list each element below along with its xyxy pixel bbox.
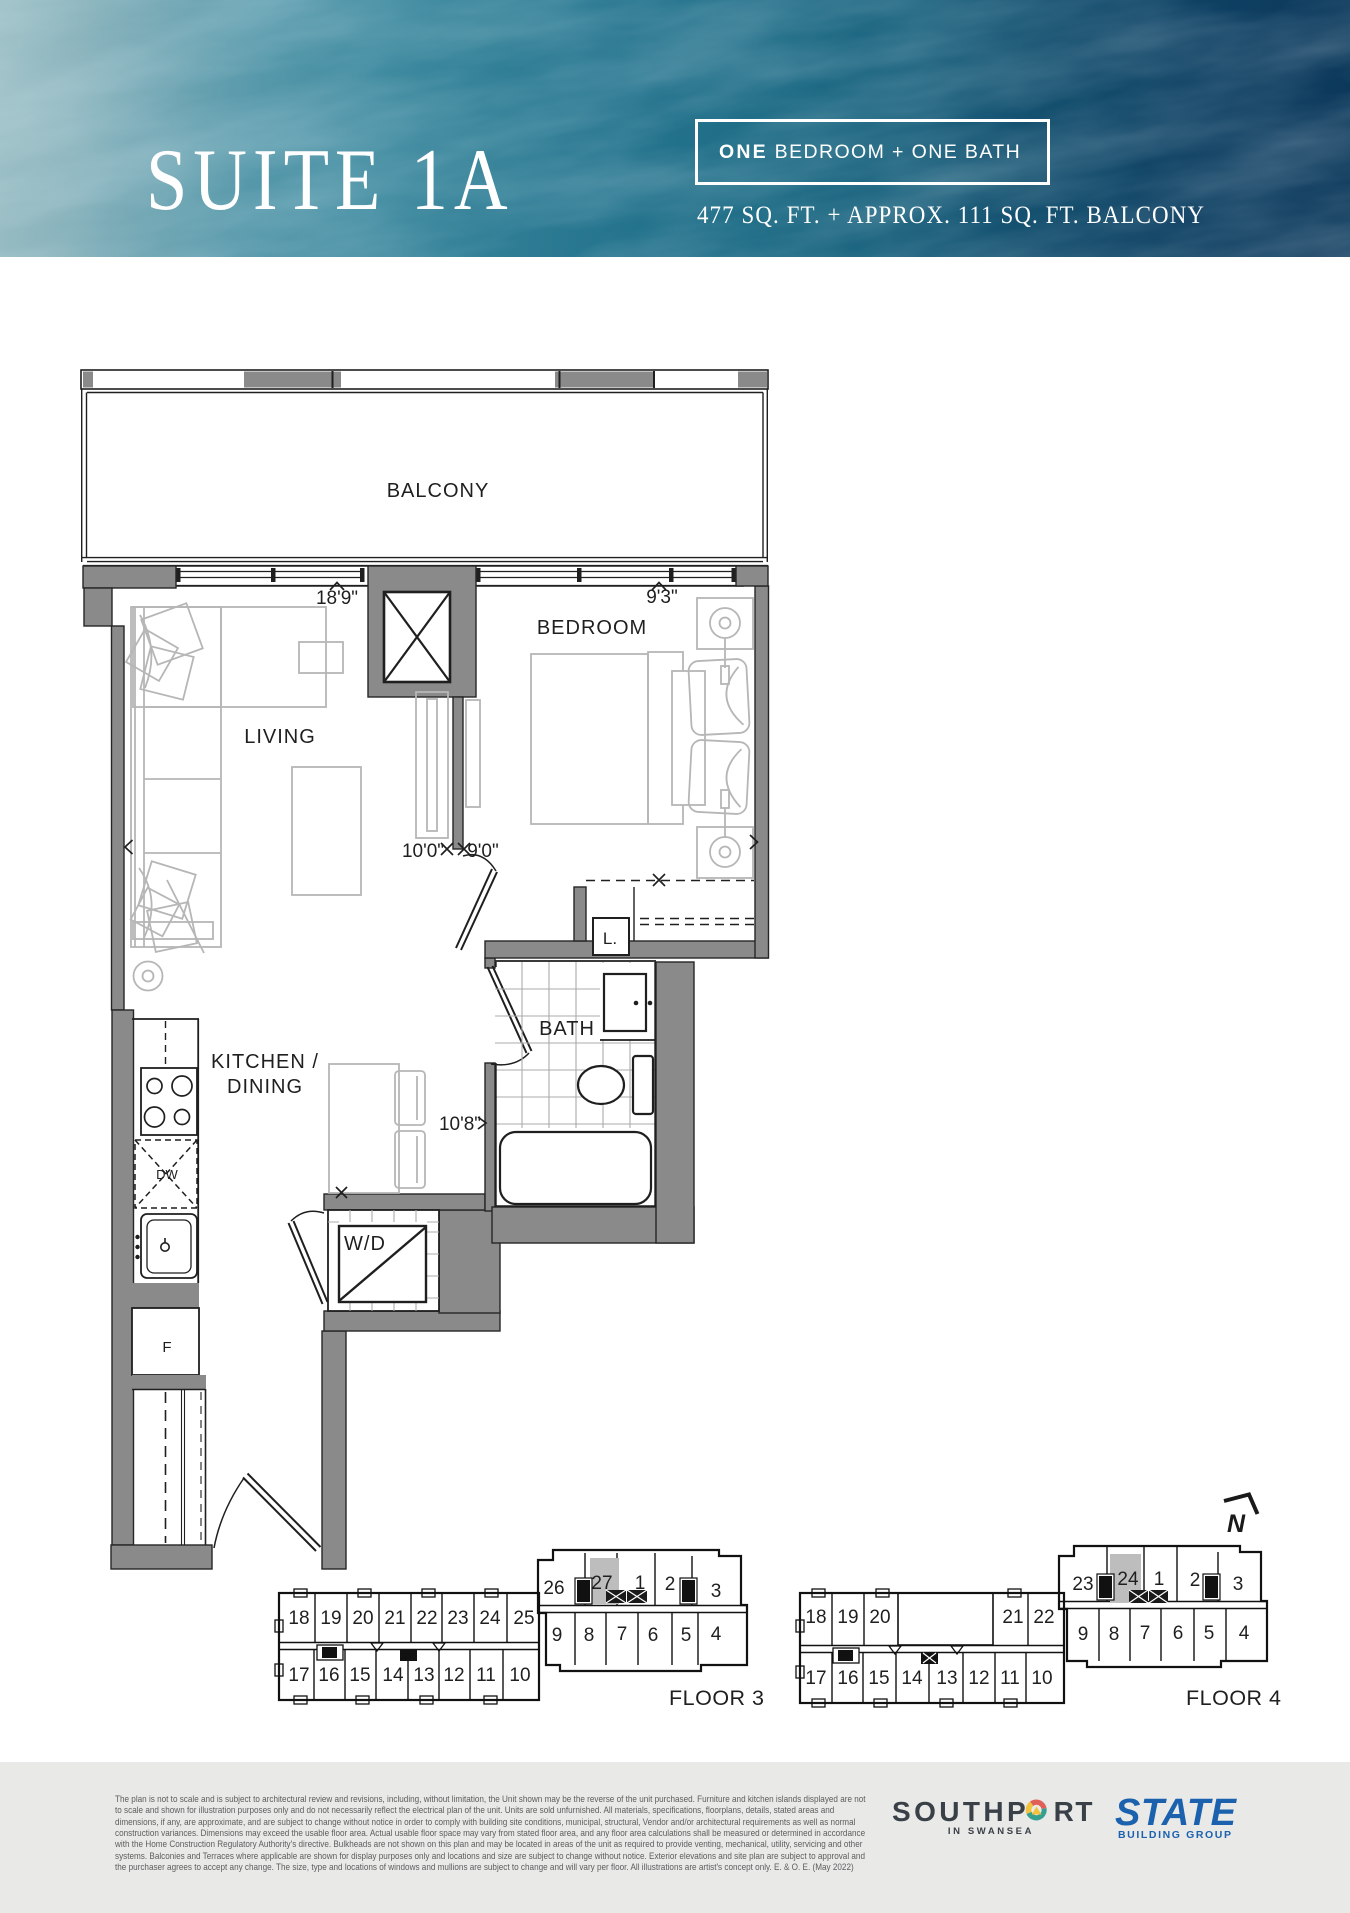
svg-text:2: 2: [665, 1574, 676, 1595]
svg-text:8: 8: [1109, 1624, 1120, 1645]
svg-text:5: 5: [681, 1625, 692, 1646]
svg-text:9'0": 9'0": [467, 841, 499, 862]
svg-text:1: 1: [635, 1573, 646, 1594]
svg-text:6: 6: [648, 1625, 659, 1646]
svg-text:21: 21: [384, 1608, 405, 1629]
svg-text:10: 10: [509, 1665, 530, 1686]
svg-text:20: 20: [869, 1607, 890, 1628]
svg-text:24: 24: [1117, 1569, 1139, 1590]
svg-text:12: 12: [968, 1668, 989, 1689]
svg-text:23: 23: [1072, 1574, 1093, 1595]
svg-text:16: 16: [837, 1668, 858, 1689]
svg-text:23: 23: [447, 1608, 468, 1629]
svg-text:19: 19: [837, 1607, 858, 1628]
svg-text:25: 25: [513, 1608, 534, 1629]
svg-text:13: 13: [936, 1668, 957, 1689]
svg-text:3: 3: [1233, 1574, 1244, 1595]
svg-text:8: 8: [584, 1625, 595, 1646]
svg-text:13: 13: [413, 1665, 434, 1686]
svg-text:DINING: DINING: [227, 1076, 303, 1098]
svg-text:14: 14: [901, 1668, 923, 1689]
svg-text:19: 19: [320, 1608, 341, 1629]
svg-text:4: 4: [1239, 1623, 1250, 1644]
svg-text:27: 27: [591, 1573, 612, 1594]
svg-text:BUILDING GROUP: BUILDING GROUP: [1118, 1829, 1233, 1841]
svg-text:15: 15: [349, 1665, 370, 1686]
svg-text:9: 9: [552, 1625, 563, 1646]
svg-text:2: 2: [1190, 1570, 1201, 1591]
svg-text:10'0": 10'0": [402, 841, 444, 862]
svg-text:22: 22: [416, 1608, 437, 1629]
svg-text:STATE: STATE: [1115, 1792, 1238, 1834]
svg-text:BATH: BATH: [539, 1018, 595, 1040]
svg-text:5: 5: [1204, 1623, 1215, 1644]
svg-text:18: 18: [805, 1607, 826, 1628]
svg-text:SOUTHP: SOUTHP: [892, 1796, 1029, 1827]
svg-text:IN SWANSEA: IN SWANSEA: [948, 1826, 1034, 1837]
svg-text:F: F: [162, 1339, 171, 1356]
svg-text:11: 11: [1000, 1668, 1020, 1689]
svg-text:12: 12: [443, 1665, 464, 1686]
svg-text:BALCONY: BALCONY: [387, 480, 490, 502]
svg-text:11: 11: [476, 1665, 496, 1686]
svg-text:9'3": 9'3": [646, 587, 678, 608]
svg-text:FLOOR 4: FLOOR 4: [1186, 1686, 1282, 1710]
svg-text:21: 21: [1002, 1607, 1023, 1628]
svg-text:10: 10: [1031, 1668, 1052, 1689]
svg-text:6: 6: [1173, 1623, 1184, 1644]
svg-text:KITCHEN /: KITCHEN /: [211, 1051, 319, 1073]
svg-text:W/D: W/D: [344, 1233, 386, 1255]
svg-text:14: 14: [382, 1665, 404, 1686]
svg-text:22: 22: [1033, 1607, 1054, 1628]
svg-text:17: 17: [288, 1665, 309, 1686]
svg-text:18: 18: [288, 1608, 309, 1629]
svg-text:FLOOR 3: FLOOR 3: [669, 1686, 765, 1710]
svg-text:DW: DW: [156, 1167, 178, 1182]
svg-text:10'8": 10'8": [439, 1114, 481, 1135]
svg-text:18'9": 18'9": [316, 588, 358, 609]
svg-text:16: 16: [318, 1665, 339, 1686]
svg-text:N: N: [1227, 1510, 1246, 1538]
svg-text:24: 24: [479, 1608, 501, 1629]
svg-text:7: 7: [1140, 1623, 1151, 1644]
svg-text:RT: RT: [1054, 1796, 1094, 1827]
svg-text:LIVING: LIVING: [244, 726, 316, 748]
svg-text:26: 26: [543, 1578, 564, 1599]
svg-text:3: 3: [711, 1581, 722, 1602]
svg-text:4: 4: [711, 1624, 722, 1645]
svg-text:7: 7: [617, 1624, 628, 1645]
svg-text:BEDROOM: BEDROOM: [537, 617, 647, 639]
svg-text:L.: L.: [603, 929, 617, 948]
svg-text:1: 1: [1154, 1569, 1165, 1590]
svg-text:17: 17: [805, 1668, 826, 1689]
svg-text:20: 20: [352, 1608, 373, 1629]
svg-text:9: 9: [1078, 1624, 1089, 1645]
svg-text:15: 15: [868, 1668, 889, 1689]
